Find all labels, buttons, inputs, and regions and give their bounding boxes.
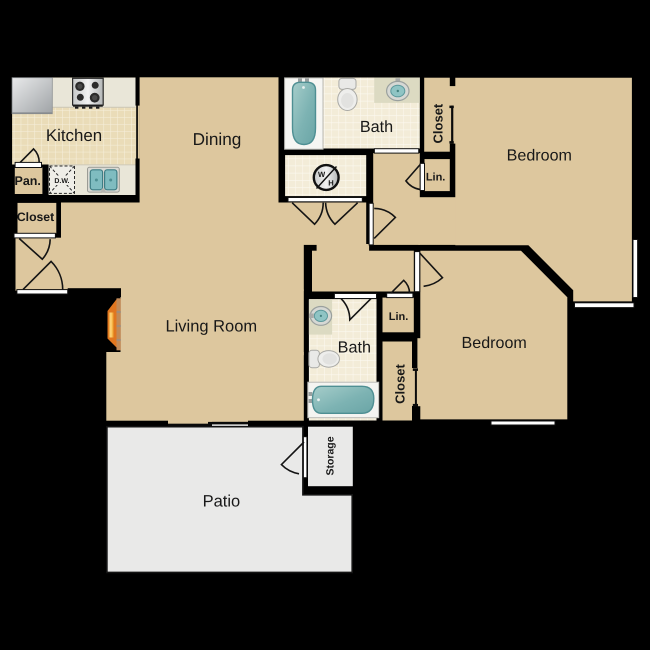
- svg-text:Pan.: Pan.: [14, 174, 40, 188]
- svg-text:Bedroom: Bedroom: [462, 334, 527, 352]
- svg-text:Patio: Patio: [203, 493, 241, 511]
- svg-text:H: H: [328, 178, 333, 187]
- svg-text:Living Room: Living Room: [165, 317, 257, 335]
- svg-text:W: W: [318, 170, 326, 179]
- svg-text:Lin.: Lin.: [426, 172, 446, 184]
- svg-text:Closet: Closet: [17, 210, 54, 224]
- svg-text:Bath: Bath: [338, 338, 371, 356]
- svg-text:Bedroom: Bedroom: [507, 147, 572, 165]
- svg-text:Bath: Bath: [360, 118, 393, 136]
- svg-text:Kitchen: Kitchen: [46, 126, 102, 145]
- svg-text:Storage: Storage: [324, 436, 336, 475]
- svg-text:Closet: Closet: [430, 103, 445, 143]
- svg-text:Closet: Closet: [393, 363, 408, 403]
- svg-text:D.W.: D.W.: [54, 178, 69, 185]
- svg-text:Lin.: Lin.: [389, 311, 409, 323]
- svg-text:Dining: Dining: [193, 129, 242, 149]
